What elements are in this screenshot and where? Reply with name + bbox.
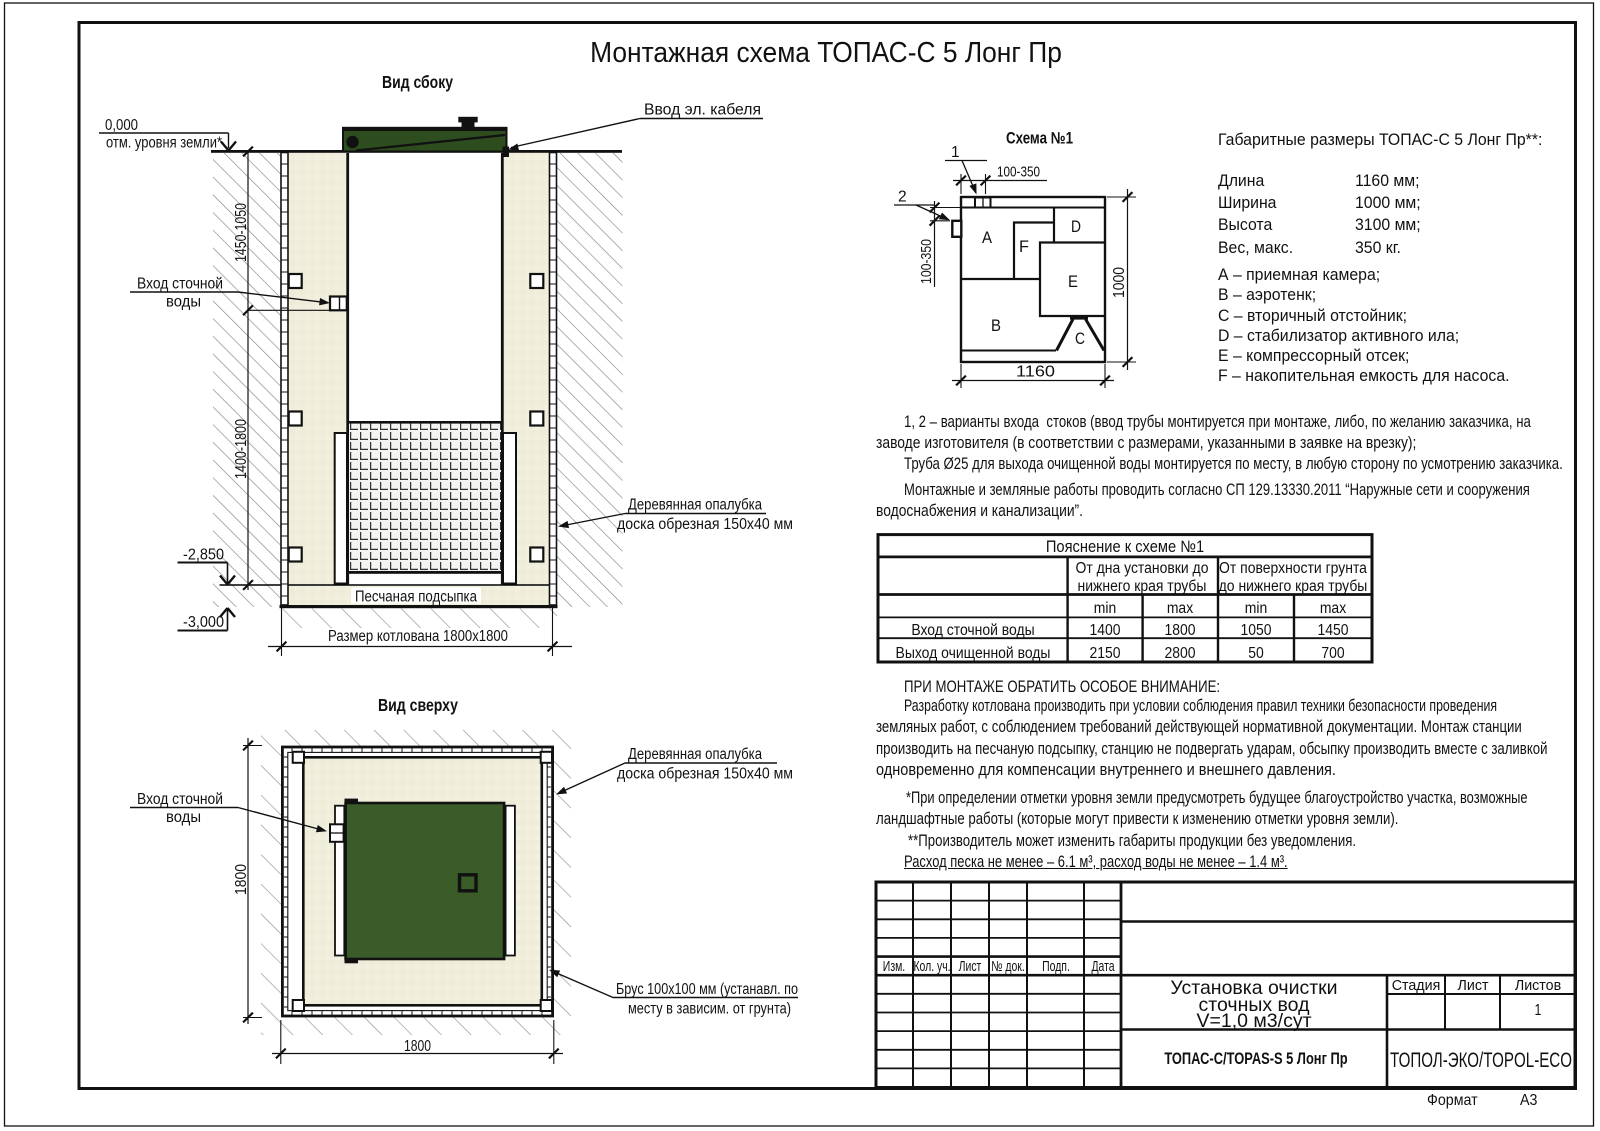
svg-text:D: D [1071,218,1081,236]
svg-text:Брус 100х100 мм (устанавл. по: Брус 100х100 мм (устанавл. по [616,981,798,998]
svg-text:-2,850: -2,850 [183,547,224,564]
svg-text:Песчаная подсыпка: Песчаная подсыпка [355,589,477,606]
svg-text:Размер котлована 1800х1800: Размер котлована 1800х1800 [328,628,508,645]
svg-text:Вид сбоку: Вид сбоку [382,72,453,92]
svg-text:Деревянная опалубка: Деревянная опалубка [628,497,762,514]
svg-text:1800: 1800 [233,864,250,895]
svg-text:1800: 1800 [404,1038,431,1055]
svg-text:100-350: 100-350 [997,164,1040,181]
svg-text:0,000: 0,000 [105,117,138,134]
svg-text:C: C [1075,330,1085,348]
svg-text:1: 1 [951,144,960,161]
svg-text:A: A [982,229,992,247]
svg-text:E: E [1068,273,1078,291]
svg-text:B: B [991,317,1001,335]
svg-text:Схема №1: Схема №1 [1006,130,1073,148]
svg-text:F: F [1019,238,1029,256]
svg-text:2: 2 [898,189,907,206]
svg-text:Вход сточной: Вход сточной [137,276,223,293]
svg-text:Ввод эл. кабеля: Ввод эл. кабеля [644,102,761,119]
svg-text:доска обрезная 150х40 мм: доска обрезная 150х40 мм [617,766,793,783]
svg-text:1160: 1160 [1016,364,1055,381]
svg-text:Деревянная опалубка: Деревянная опалубка [628,746,762,763]
svg-text:100-350: 100-350 [918,239,935,284]
svg-text:отм. уровня земли*: отм. уровня земли* [106,135,222,152]
svg-text:месту в зависим. от грунта): месту в зависим. от грунта) [628,1001,791,1018]
svg-text:воды: воды [166,294,201,311]
svg-text:воды: воды [166,809,201,826]
svg-text:1450-1050: 1450-1050 [233,203,250,262]
svg-text:1000: 1000 [1111,267,1128,298]
svg-text:Вид сверху: Вид сверху [378,695,458,715]
svg-text:Вход сточной: Вход сточной [137,791,223,808]
svg-text:-3,000: -3,000 [183,614,224,631]
svg-text:доска обрезная 150х40 мм: доска обрезная 150х40 мм [617,516,793,533]
svg-text:1400-1800: 1400-1800 [233,419,250,479]
